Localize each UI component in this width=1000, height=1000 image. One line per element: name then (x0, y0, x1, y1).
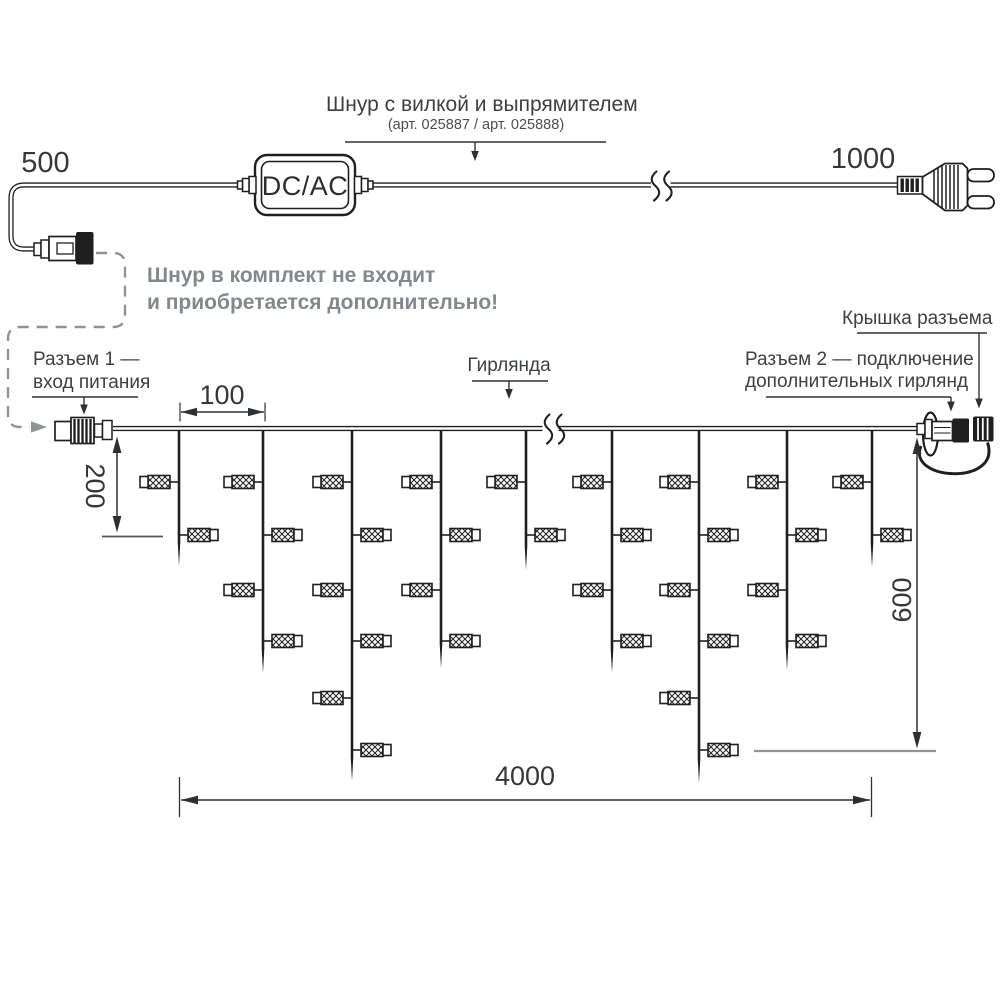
lamp-icon (263, 529, 302, 542)
cord-callout-leader (345, 142, 606, 152)
lamp-icon (699, 529, 738, 542)
plug-pin (968, 169, 995, 182)
lamp-icon (402, 584, 441, 597)
lamp-icon (787, 529, 826, 542)
note-line2: и приобретается дополнительно! (147, 291, 498, 315)
dashed-connection-path (8, 253, 125, 433)
garland-drop (660, 430, 738, 783)
lamp-icon (573, 584, 612, 597)
lamp-icon (352, 529, 391, 542)
dim-200-label: 200 (82, 441, 110, 531)
lamp-icon (833, 476, 872, 489)
lamp-icon (313, 476, 352, 489)
lamp-icon (352, 635, 391, 648)
garland-drop (140, 430, 218, 566)
garland-drop (833, 430, 911, 567)
garland-drop (573, 430, 651, 673)
garland-drop (487, 430, 565, 570)
dim-1000-label: 1000 (818, 143, 908, 175)
lamp-icon (872, 529, 911, 542)
dim-600-label: 600 (887, 555, 915, 645)
garland-label-leader (472, 381, 548, 390)
lamp-icon (748, 584, 787, 597)
lamp-icon (263, 635, 302, 648)
connector2-label-leader (766, 397, 951, 402)
garland-drop (402, 430, 480, 668)
lamp-icon (441, 529, 480, 542)
cord-callout-subtitle: (арт. 025887 / арт. 025888) (326, 117, 626, 133)
lamp-icon (660, 584, 699, 597)
lamp-icon (526, 529, 565, 542)
garland-drop (748, 430, 826, 670)
lamp-icon (699, 744, 738, 757)
arrow-down-icon (947, 402, 955, 412)
gray-arrow-right-icon (31, 421, 47, 432)
lamp-icon (224, 584, 263, 597)
lamp-icon (612, 635, 651, 648)
lamp-icon (140, 476, 179, 489)
dim-500-label: 500 (8, 147, 83, 179)
lamp-icon (352, 744, 391, 757)
lamp-icon (612, 529, 651, 542)
cord-end-connector (34, 232, 94, 265)
lamp-icon (660, 476, 699, 489)
connector2-label-line2: дополнительных гирлянд (745, 371, 965, 392)
dim-4000-label: 4000 (462, 761, 588, 791)
garland-drops (140, 430, 911, 783)
connector-1 (55, 418, 112, 444)
wire-break-icon (545, 415, 564, 444)
note-line1: Шнур в комплект не входит (147, 264, 435, 288)
garland-label: Гирлянда (444, 355, 574, 376)
arrow-down-icon (975, 399, 983, 409)
arrow-down-icon (471, 151, 479, 161)
connector-2 (917, 413, 994, 474)
dim-100-label: 100 (182, 380, 262, 410)
connector1-label-line1: Разъем 1 — (33, 349, 139, 370)
plug-pin (968, 196, 995, 209)
diagram-canvas: 500 1000 DC/AC Шнур с вилкой и выпрямите… (0, 0, 1000, 1000)
lamp-icon (224, 476, 263, 489)
lamp-icon (313, 584, 352, 597)
lamp-icon (441, 635, 480, 648)
lamp-icon (402, 476, 441, 489)
lamp-icon (660, 692, 699, 705)
dcac-label: DC/AC (255, 171, 355, 201)
garland-drop (313, 430, 391, 781)
power-plug-icon (898, 164, 995, 211)
arrow-down-icon (505, 389, 513, 399)
connector2-label-line1: Разъем 2 — подключение (745, 349, 965, 370)
garland-assembly (32, 333, 994, 783)
connector1-label-line2: вход питания (33, 372, 150, 393)
lamp-icon (573, 476, 612, 489)
lamp-icon (179, 529, 218, 542)
garland-drop (224, 430, 302, 673)
cap-label: Крышка разъема (842, 308, 992, 329)
cord-callout-title: Шнур с вилкой и выпрямителем (326, 93, 626, 117)
connector-cap-black (76, 232, 94, 265)
lamp-icon (787, 635, 826, 648)
lamp-icon (699, 635, 738, 648)
lamp-icon (748, 476, 787, 489)
arrow-down-icon (80, 405, 88, 415)
lamp-icon (313, 692, 352, 705)
cap-tether-cord (919, 443, 989, 474)
lamp-icon (487, 476, 526, 489)
cord-break-icon (652, 172, 672, 201)
connector-cap (973, 417, 994, 442)
